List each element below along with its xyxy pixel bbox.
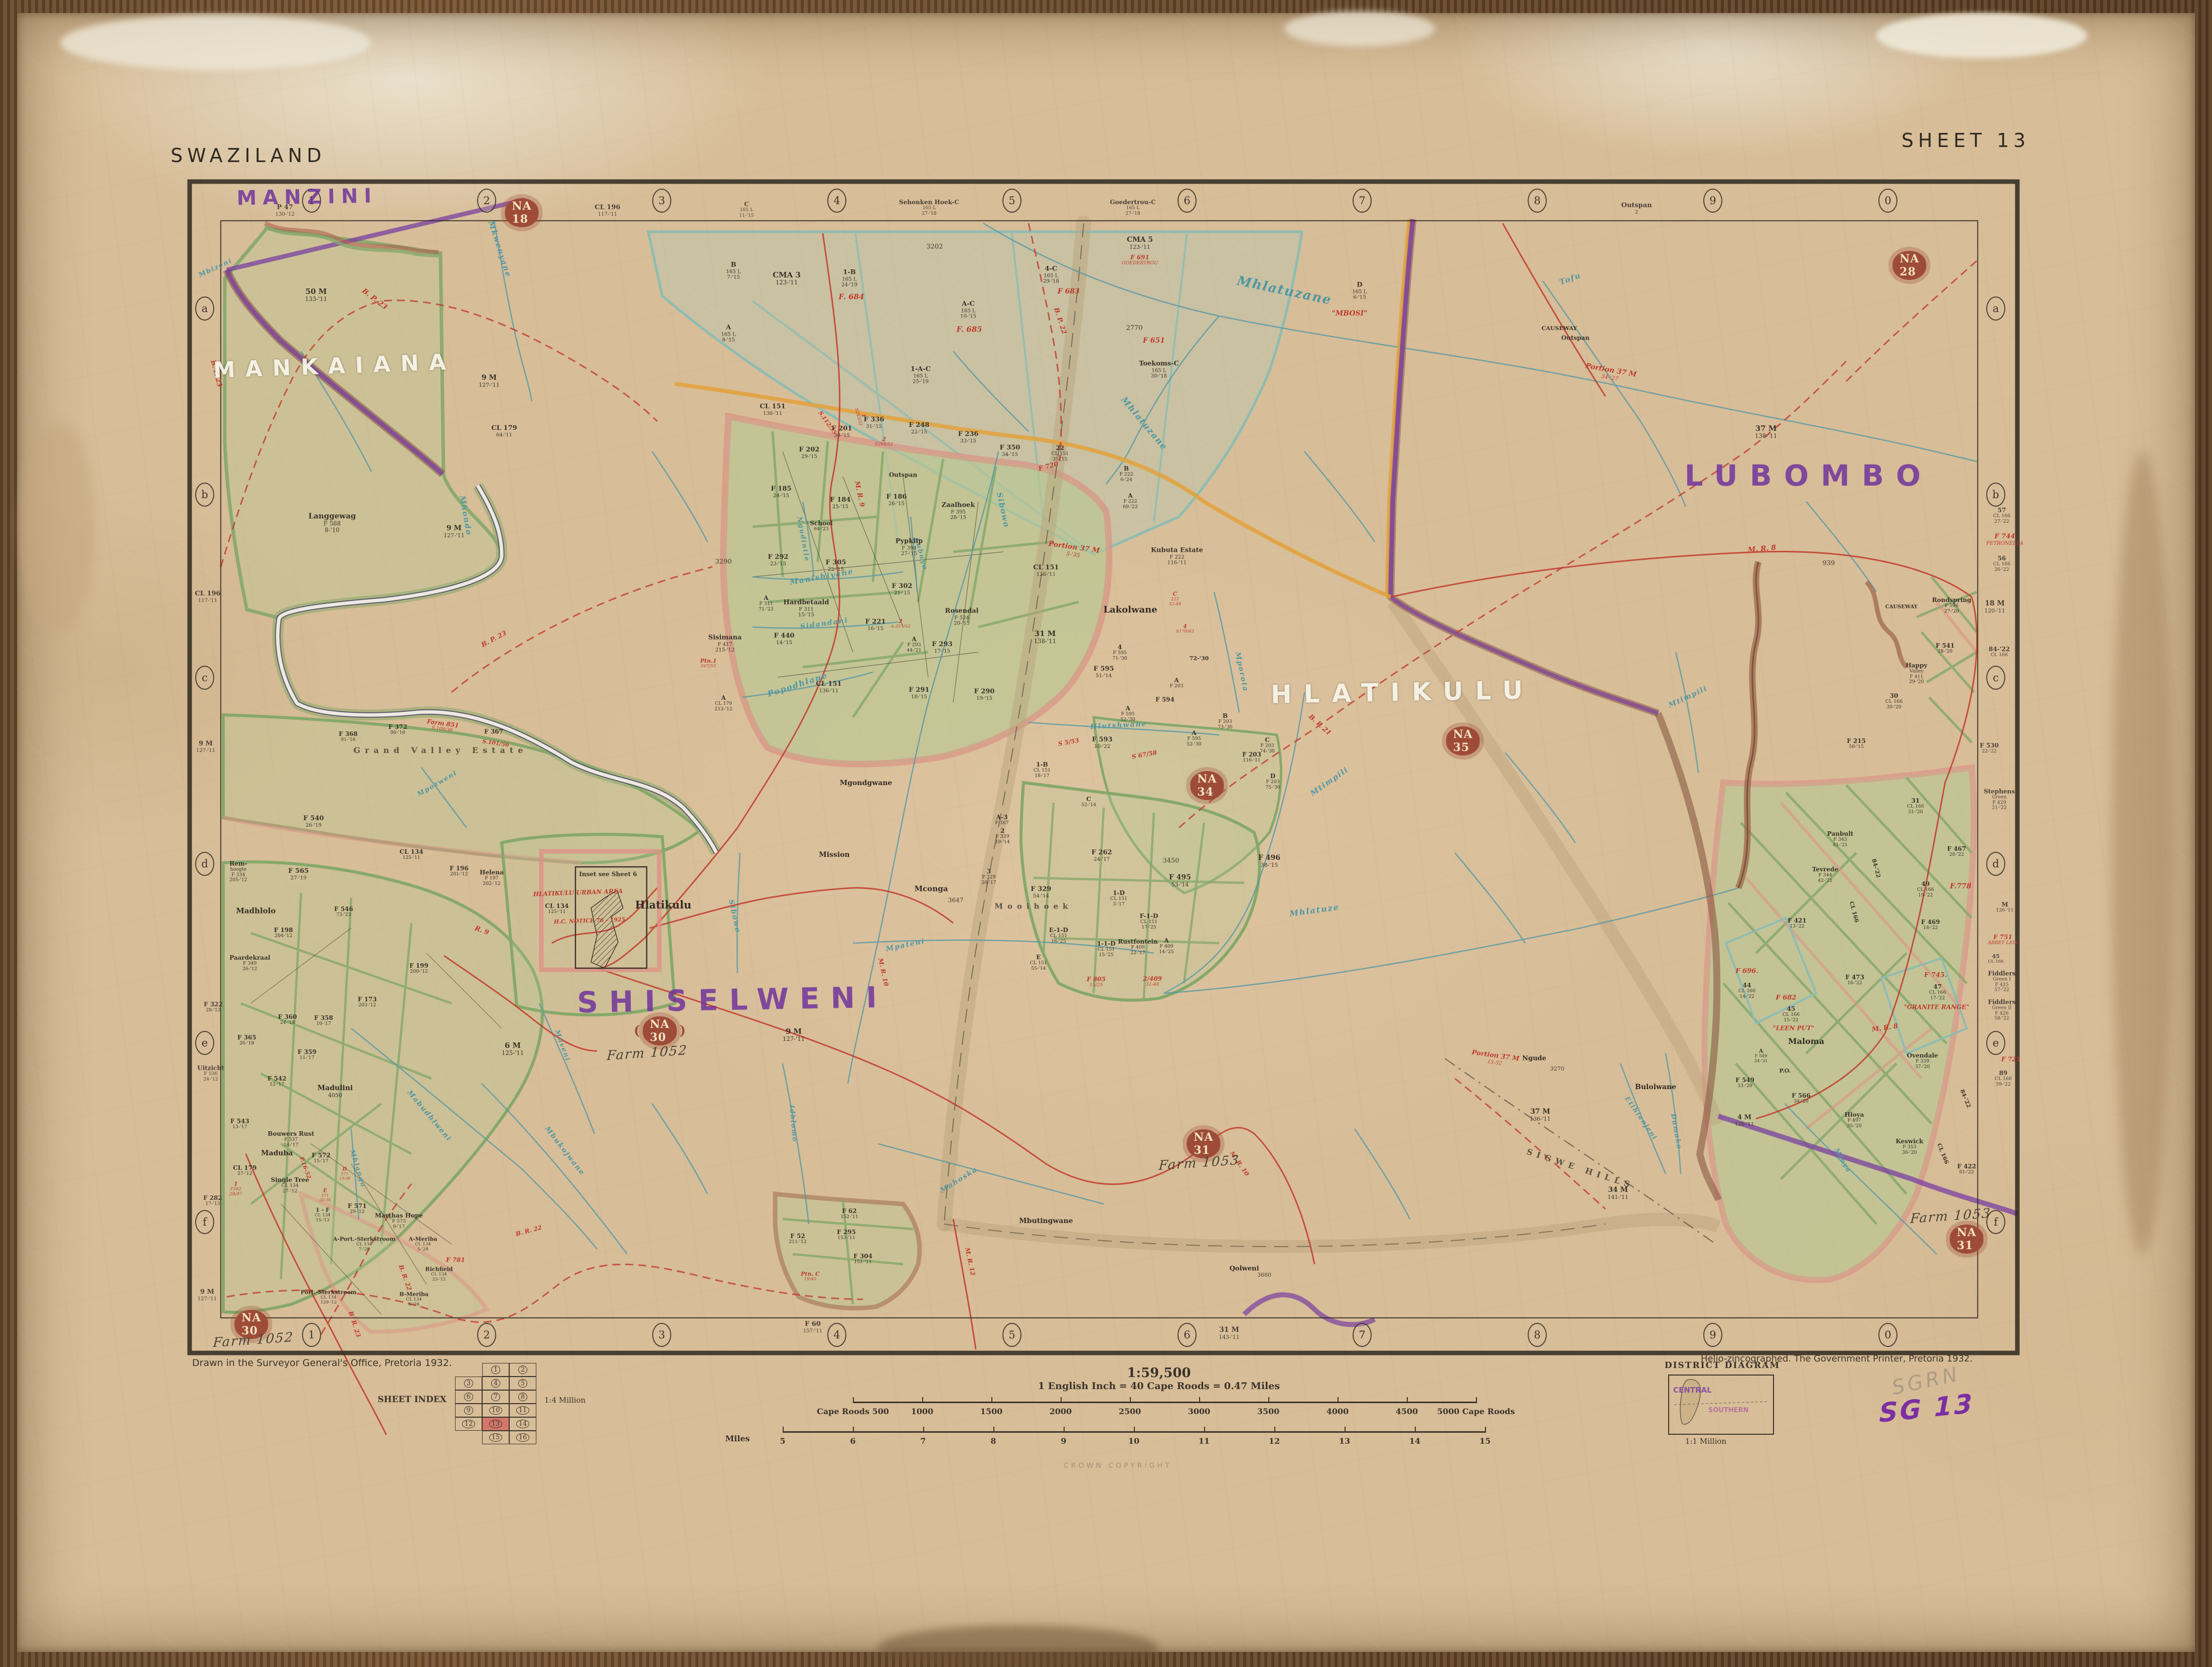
map-label-line: A bbox=[714, 695, 732, 701]
map-label-line: 165 L bbox=[1352, 289, 1367, 294]
map-label: KeswickF 35336-'20 bbox=[1895, 1138, 1923, 1155]
sheet-index-cell: 3 bbox=[455, 1377, 482, 1390]
map-label-line: F 572 bbox=[312, 1152, 331, 1159]
scalebar-label: 3000 bbox=[1188, 1407, 1211, 1416]
map-label-line: Bouwers Rust bbox=[267, 1131, 314, 1137]
scalebar-tick bbox=[1338, 1397, 1339, 1403]
map-label-line: F 350 bbox=[1000, 444, 1020, 452]
map-label-line: ABBEY LEIX bbox=[1988, 941, 2018, 946]
map-label-line: 36-'20 bbox=[1895, 1150, 1923, 1155]
scalebar-label: 1500 bbox=[980, 1407, 1003, 1416]
map-label-line: S284/52 bbox=[875, 442, 893, 447]
map-label-line: 50 M bbox=[305, 287, 327, 296]
map-label-line: 3202 bbox=[926, 244, 943, 251]
map-label-line: 116-'11 bbox=[1151, 560, 1203, 565]
map-label-line: Madulini bbox=[318, 1085, 353, 1093]
map-label-line: 17-'25 bbox=[1140, 925, 1158, 930]
map-label-line: 20-'17 bbox=[981, 880, 996, 885]
map-label-line: 117-'11 bbox=[595, 212, 620, 217]
native-area-badge: NA 35 bbox=[1446, 726, 1480, 755]
map-label-line: F 203 bbox=[1242, 751, 1261, 758]
map-label-line: 27-'19 bbox=[288, 875, 309, 881]
map-label-line: F 282 bbox=[203, 1195, 222, 1201]
map-label: 37 M138-'11 bbox=[1755, 424, 1777, 439]
map-label: 2/40931-44 bbox=[1143, 976, 1162, 988]
map-label-line: Qolweni bbox=[1230, 1266, 1259, 1273]
map-label-line: 165 L bbox=[726, 269, 741, 274]
district-diagram-outline bbox=[1669, 1376, 1773, 1434]
map-label: AF 203 bbox=[1169, 677, 1183, 689]
map-label-line: 1-D bbox=[1110, 890, 1127, 896]
map-label-line: Fiddlers bbox=[1988, 999, 2015, 1006]
sheet-index-cell: 13 bbox=[482, 1417, 509, 1431]
map-label: F 46918-'22 bbox=[1921, 919, 1940, 931]
map-label: F 62152-'11 bbox=[840, 1208, 858, 1220]
map-label-line: F 651 bbox=[1143, 337, 1165, 345]
scalebar-tick bbox=[1061, 1397, 1062, 1403]
grid-number: 5 bbox=[1002, 189, 1021, 213]
sheet-index-cell: 6 bbox=[455, 1390, 482, 1404]
map-label: AF 40914-'25 bbox=[1159, 938, 1174, 955]
map-label-line: F 588 bbox=[309, 520, 356, 527]
map-label-line: F 541 bbox=[1936, 643, 1955, 649]
map-label: F 57215-'17 bbox=[312, 1152, 331, 1164]
map-label: F 80515/25 bbox=[1087, 976, 1106, 988]
map-label-line: 30-'20 bbox=[1885, 705, 1902, 710]
map-label: CL 151136-'11 bbox=[816, 681, 841, 694]
map-label-line: CL 196 bbox=[595, 204, 620, 212]
map-label-line: 3290 bbox=[715, 559, 731, 566]
map-label-line: Mission bbox=[819, 851, 849, 859]
map-label-line: A bbox=[1123, 493, 1138, 499]
map-label: School64-'23 bbox=[810, 520, 832, 532]
map-label-line: 127-'11 bbox=[479, 382, 499, 388]
map-label: F 745. bbox=[1924, 972, 1947, 980]
map-label-line: 28-'15 bbox=[942, 515, 975, 520]
map-label: 9 M127-'11 bbox=[444, 525, 464, 539]
map-label: "GRANITE RANGE" bbox=[1904, 1004, 1970, 1010]
map-label: F 24822-'15 bbox=[909, 422, 930, 435]
scalebar-tick bbox=[991, 1397, 992, 1403]
map-label-line: P.O. bbox=[1779, 1068, 1791, 1074]
map-label-line: F 322 bbox=[204, 1001, 223, 1008]
map-label-line: A bbox=[759, 595, 774, 601]
map-label: PaardekraalF 34926-'12 bbox=[229, 955, 270, 972]
map-label-line: F 203 bbox=[1169, 684, 1183, 689]
scalebar-label: 15 bbox=[1480, 1436, 1491, 1446]
map-label-line: 120-'11 bbox=[1984, 608, 2005, 614]
map-label-line: F 290 bbox=[974, 688, 995, 696]
map-label-line: 165 L bbox=[911, 373, 931, 379]
map-label-line: F 467 bbox=[1947, 846, 1966, 852]
map-label-line: F 196 bbox=[450, 865, 469, 872]
map-label: M126-'11 bbox=[1996, 901, 2013, 914]
map-label-line: 1-A-C bbox=[911, 366, 931, 373]
map-label: Qolweni bbox=[1230, 1266, 1259, 1273]
map-label-line: 16-'25 bbox=[1049, 939, 1068, 944]
map-label: 1 - FCL 13415-'13 bbox=[315, 1207, 330, 1223]
map-label-line: 2/409 bbox=[1143, 976, 1162, 982]
sheet-index-number: 1 bbox=[491, 1366, 500, 1374]
map-label-line: 84-'22 bbox=[1989, 646, 2010, 653]
map-label-line: 12-'17 bbox=[267, 1082, 286, 1087]
map-label-line: 22-'15 bbox=[909, 429, 930, 435]
sheet-index-number: 14 bbox=[516, 1420, 530, 1428]
map-label-line: 31 bbox=[1907, 798, 1924, 804]
map-label: Ptn. C19/45 bbox=[801, 1271, 820, 1282]
map-label-line: F 185 bbox=[771, 486, 792, 493]
map-label: F-1-DCL 15117-'25 bbox=[1140, 913, 1158, 930]
map-label-line: CL 151 bbox=[760, 403, 785, 411]
map-label-line: F 781 bbox=[446, 1257, 465, 1263]
map-label-line: F 566 bbox=[1792, 1093, 1811, 1099]
map-label-line: 29-'20 bbox=[1906, 680, 1928, 685]
map-label-line: A bbox=[1169, 677, 1183, 684]
map-label: A-3F 367 bbox=[995, 814, 1008, 826]
scalebar-tick bbox=[1407, 1397, 1408, 1403]
map-label-line: 21-'15 bbox=[892, 590, 913, 596]
sheet-index-cell: 11 bbox=[509, 1404, 536, 1417]
map-label-line: 3-'17 bbox=[1110, 902, 1127, 907]
map-label: F 54026-'19 bbox=[304, 815, 324, 828]
scalebar-label: 5000 Cape Roods bbox=[1437, 1407, 1515, 1416]
district-diagram-box: CENTRALSOUTHERN bbox=[1668, 1375, 1774, 1435]
map-label-line: 125-'11 bbox=[399, 855, 423, 860]
map-label: UitzichtF 53624-'12 bbox=[197, 1065, 224, 1082]
sheet-index-number: 3 bbox=[464, 1379, 473, 1388]
badge-paren: ( bbox=[634, 1023, 640, 1038]
map-label: 45CL 166 bbox=[1988, 954, 2003, 965]
map-label: F 682 bbox=[1776, 995, 1797, 1002]
map-label-line: Marthas Hope bbox=[375, 1213, 423, 1219]
native-area-badge: NA 34 bbox=[1190, 771, 1224, 800]
map-label-line: Goedertrou-C bbox=[1110, 199, 1155, 206]
map-label-line: F 215 bbox=[1847, 738, 1866, 744]
grid-number: 4 bbox=[827, 189, 846, 213]
map-label: PypklipF 39427-'15 bbox=[896, 538, 923, 556]
map-label-line: A bbox=[1120, 705, 1135, 712]
map-label: 84-'22CL 166 bbox=[1989, 646, 2010, 658]
map-label: 3450 bbox=[1162, 858, 1179, 865]
map-label-line: 5-'28 bbox=[408, 1247, 437, 1252]
map-label: F 54128-'20 bbox=[1936, 643, 1955, 655]
map-label: "MBOSI" bbox=[1332, 310, 1367, 318]
sheet-index-grid: 12345678910111213141516 bbox=[455, 1363, 536, 1444]
grid-number: 9 bbox=[1703, 189, 1722, 213]
map-label-line: 24-'31 bbox=[1754, 1059, 1767, 1064]
map-label-line: 126-'11 bbox=[1735, 1122, 1754, 1127]
scalebar-tick bbox=[1345, 1427, 1346, 1433]
map-label-line: 200-'12 bbox=[409, 969, 428, 974]
map-label-line: F 683 bbox=[1058, 288, 1080, 296]
map-label-line: F 292 bbox=[768, 554, 789, 561]
map-label-line: C bbox=[1260, 737, 1275, 743]
sheet-index-cell: 15 bbox=[482, 1431, 509, 1444]
map-label: AF 59552-'30 bbox=[1187, 730, 1202, 747]
map-label-line: 90-'16 bbox=[388, 730, 407, 735]
map-label: 939 bbox=[1823, 560, 1835, 568]
scalebar-label: 10 bbox=[1128, 1436, 1139, 1446]
map-label-line: 9 M bbox=[479, 374, 499, 382]
scalebar-tick bbox=[1064, 1427, 1065, 1433]
grid-number: 0 bbox=[1878, 1323, 1897, 1347]
map-label: A-Port.-SterkstroomCL 1347-'28 bbox=[333, 1236, 396, 1252]
grid-letter: a bbox=[195, 296, 214, 321]
map-label-line: F 751 bbox=[1988, 934, 2018, 941]
map-label-line: 20-'22 bbox=[1947, 852, 1966, 857]
map-label-line: 30 bbox=[1885, 693, 1902, 699]
district-diagram-stamp: CENTRAL bbox=[1673, 1386, 1712, 1395]
map-label: CAUSEWAY bbox=[1885, 604, 1918, 610]
map-label: C165 L11-'15 bbox=[739, 201, 754, 218]
map-label-line: F 682 bbox=[1776, 995, 1797, 1002]
map-label: 45CL 16615-'22 bbox=[1783, 1006, 1800, 1023]
grid-number: 0 bbox=[1878, 189, 1897, 213]
map-label: F 29317-'15 bbox=[932, 641, 953, 654]
map-label-line: F 473 bbox=[1845, 974, 1864, 981]
map-label: F 367 bbox=[484, 728, 503, 735]
map-label: 31 M138-'11 bbox=[1034, 630, 1056, 645]
map-label: LanggewagF 5888-'10 bbox=[309, 512, 356, 534]
map-label-line: 136-'11 bbox=[1033, 572, 1059, 577]
map-label-line: D bbox=[1265, 773, 1280, 780]
map-label-line: 21-'22 bbox=[1984, 806, 2015, 811]
map-label: 1-1-DCL 15115-'25 bbox=[1097, 941, 1115, 958]
sheet-index-cell: 12 bbox=[455, 1417, 482, 1431]
map-label: F 691GOEDERTROU bbox=[1122, 254, 1158, 266]
badge-na-30: NA 30 bbox=[643, 1016, 676, 1045]
scalebar-label: 4000 bbox=[1326, 1407, 1349, 1416]
sheet-index-number: 7 bbox=[491, 1393, 500, 1401]
sheet-index-row: 12 bbox=[455, 1363, 536, 1377]
grid-letter: e bbox=[195, 1031, 214, 1055]
map-label-line: A-257/52 bbox=[891, 625, 910, 630]
map-label-line: 203-'12 bbox=[358, 1003, 377, 1008]
grid-number: 5 bbox=[1002, 1323, 1021, 1347]
map-label-line: F 222 bbox=[1151, 554, 1203, 560]
map-label-line: CL 179 bbox=[233, 1165, 256, 1171]
paper-background bbox=[17, 13, 2195, 1652]
map-label-line: GOEDERTROU bbox=[1122, 261, 1158, 266]
sheet-index-cell: 4 bbox=[482, 1377, 509, 1390]
map-label-line: 153-'11 bbox=[837, 1236, 856, 1241]
badge-na-31: NA 31 bbox=[1950, 1225, 1983, 1254]
map-label: F 54313-'17 bbox=[230, 1118, 249, 1130]
map-label: F 54212-'17 bbox=[267, 1076, 286, 1088]
map-label-line: B bbox=[726, 261, 741, 269]
map-label-line: 52-'14 bbox=[1081, 803, 1096, 808]
map-label-line: Maloma bbox=[1788, 1037, 1824, 1046]
map-label-line: 202-'12 bbox=[480, 881, 504, 886]
map-label: F.778 bbox=[1950, 883, 1972, 891]
map-label-line: 207/52 bbox=[700, 664, 717, 669]
map-label-line: Panbult bbox=[1827, 831, 1853, 837]
map-label-line: 19/45 bbox=[801, 1277, 820, 1282]
map-label-line: Mooihoek bbox=[994, 902, 1072, 911]
map-label-line: 22-'22 bbox=[1980, 749, 1999, 754]
badge-na-28: NA 28 bbox=[1892, 251, 1926, 280]
map-label-line: 19-38 bbox=[339, 1177, 350, 1181]
map-label: 4F 59571-'30 bbox=[1112, 644, 1127, 661]
map-label: F 20229-'15 bbox=[799, 446, 820, 460]
map-label: RichfieldCL 13423-'12 bbox=[425, 1266, 453, 1282]
map-label-line: 15-'15 bbox=[784, 612, 829, 618]
map-label-line: 2B/47 bbox=[229, 1192, 242, 1197]
map-label-line: Bulolwane bbox=[1635, 1084, 1676, 1092]
sheet-index-cell bbox=[455, 1431, 482, 1444]
map-label-line: 15-'13 bbox=[315, 1218, 330, 1223]
map-label-line: F-1-D bbox=[1140, 913, 1158, 920]
map-label: A-C165 L10-'15 bbox=[960, 300, 976, 319]
native-area-badge: NA 31 bbox=[1950, 1225, 1983, 1254]
map-label-line: 57-'22 bbox=[1988, 988, 2015, 993]
map-label: CMA 5123-'11 bbox=[1127, 236, 1153, 250]
map-label-line: 138-'11 bbox=[1755, 433, 1777, 439]
map-label-line: Lakolwane bbox=[1103, 605, 1157, 615]
sheet-index-number: 11 bbox=[516, 1406, 530, 1415]
map-label: 72-'30 bbox=[1190, 656, 1209, 662]
map-label: ZaalhoekF 39528-'15 bbox=[942, 502, 975, 520]
map-label-line: 204-'12 bbox=[274, 934, 293, 939]
map-label-line: 165 L bbox=[721, 332, 735, 337]
map-label-line: F 524 bbox=[945, 615, 979, 621]
map-label-line: 27-'20 bbox=[1932, 609, 1971, 614]
map-label-line: Mgondgwane bbox=[840, 780, 893, 788]
map-label: 49CL 16619-'22 bbox=[1917, 881, 1934, 898]
map-label: F 781 bbox=[446, 1257, 465, 1263]
map-label-line: 31 M bbox=[1219, 1326, 1239, 1334]
map-label-line: 26-'22 bbox=[1993, 567, 2010, 572]
scalebar-label: 5 bbox=[780, 1436, 785, 1446]
map-label: Mission bbox=[819, 851, 849, 859]
district-stamp: MANZINI bbox=[236, 185, 377, 210]
map-label-line: CL 134 bbox=[399, 849, 423, 855]
map-label: F 21550-'15 bbox=[1847, 738, 1866, 750]
map-label-line: 6-'15 bbox=[1352, 294, 1367, 300]
map-label-line: 24-'12 bbox=[197, 1077, 224, 1082]
sheet-index-number: 4 bbox=[491, 1379, 500, 1388]
map-label-line: F 221 bbox=[865, 619, 886, 626]
map-label-line: 201-'12 bbox=[450, 872, 469, 877]
map-label: AF 29344-'21 bbox=[907, 636, 922, 653]
map-label-line: 29-'18 bbox=[1043, 278, 1059, 284]
map-label-line: 24-'19 bbox=[841, 282, 857, 287]
grid-number: 8 bbox=[1528, 189, 1547, 213]
map-label-line: F 495 bbox=[1169, 874, 1191, 882]
map-label-line: F 199 bbox=[409, 963, 428, 969]
map-label-line: C bbox=[739, 201, 754, 208]
scalebar-tick bbox=[853, 1427, 854, 1433]
map-label: 37 M136-'11 bbox=[1530, 1108, 1550, 1122]
grid-number: 7 bbox=[1353, 1323, 1372, 1347]
map-label-line: A-3 bbox=[995, 814, 1008, 821]
map-label-line: 17-'22 bbox=[1929, 996, 1946, 1001]
map-label-line: 127-'11 bbox=[196, 748, 215, 753]
map-label-line: Rondspring bbox=[1932, 597, 1971, 603]
map-label: Maduba bbox=[261, 1150, 292, 1158]
map-label-line: F 595 bbox=[1094, 666, 1114, 673]
map-label-line: F. 685 bbox=[957, 326, 982, 334]
map-label: F 56527-'19 bbox=[288, 868, 309, 881]
map-label: Mconga bbox=[915, 885, 948, 893]
map-label-line: F 745. bbox=[1924, 972, 1947, 980]
map-label-line: 91-'16 bbox=[339, 737, 358, 742]
map-label: HelenaF 197202-'12 bbox=[480, 869, 504, 886]
grid-number: 6 bbox=[1177, 1323, 1197, 1347]
district-diagram-stamp: SOUTHERN bbox=[1708, 1407, 1749, 1414]
map-label-line: 116-'11 bbox=[1242, 758, 1261, 763]
sheet-index-row: 345 bbox=[455, 1377, 536, 1390]
map-label: Outspan bbox=[889, 472, 917, 478]
map-label: F 18626-'15 bbox=[887, 494, 907, 507]
badge-na-34: NA 34 bbox=[1190, 771, 1224, 800]
sheet-index-number: 9 bbox=[464, 1406, 473, 1415]
map-label: 4 M126-'11 bbox=[1735, 1114, 1754, 1127]
map-label: 6 M125-'11 bbox=[502, 1041, 524, 1056]
map-label: F 49638-'15 bbox=[1258, 854, 1280, 868]
map-label: 44CL 16614-'22 bbox=[1738, 982, 1755, 999]
map-label-line: 18-'17 bbox=[1034, 774, 1051, 779]
map-label-line: 14-'25 bbox=[1159, 950, 1174, 955]
grid-number: 2 bbox=[477, 189, 496, 213]
map-label-line: Sehonken Hoek-C bbox=[899, 199, 959, 206]
map-label: 18 M120-'11 bbox=[1984, 600, 2005, 614]
map-label: 3647 bbox=[948, 897, 964, 903]
scalebar-tick bbox=[1134, 1427, 1135, 1433]
map-label: 1F2822B/47 bbox=[229, 1181, 242, 1197]
scalebar-label: 2500 bbox=[1119, 1407, 1141, 1416]
native-area-badge: (NA 30) bbox=[634, 1016, 686, 1045]
map-label-line: "LEEN PUT" bbox=[1773, 1025, 1815, 1031]
map-label-line: 14-'15 bbox=[774, 640, 795, 646]
map-label: Madulini4050 bbox=[318, 1085, 353, 1099]
map-label-line: Maduba bbox=[261, 1150, 292, 1158]
map-label-line: A bbox=[721, 324, 735, 332]
map-label: F 56634-'20 bbox=[1792, 1093, 1811, 1105]
map-label: F. 684 bbox=[839, 293, 864, 301]
map-label-line: CMA 5 bbox=[1127, 236, 1153, 244]
map-label-line: F 291 bbox=[909, 687, 930, 694]
map-label-line: 165 L bbox=[1043, 273, 1059, 278]
map-label-line: 136-'11 bbox=[1530, 1116, 1550, 1122]
map-label-line: Helena bbox=[480, 869, 504, 876]
map-label: CL 151136-'11 bbox=[760, 403, 785, 416]
map-label-line: 14-'17 bbox=[267, 1143, 314, 1148]
scalebar-label: Cape Roods 500 bbox=[817, 1407, 889, 1416]
map-label: FiddlersGreen IIF 42658-'22 bbox=[1988, 999, 2015, 1022]
map-label-line: Outspan bbox=[889, 472, 917, 478]
map-label: F 29118-'15 bbox=[909, 687, 930, 700]
map-label: TevredeF 34442-'21 bbox=[1812, 866, 1838, 883]
map-label-line: 127-'11 bbox=[198, 1296, 217, 1302]
map-label: A165 L8-'15 bbox=[721, 324, 735, 343]
map-label-line: 1-B bbox=[1034, 762, 1051, 768]
map-label-line: S170/63 bbox=[1176, 630, 1194, 635]
map-label-line: 26-'12 bbox=[229, 967, 270, 972]
map-label-line: Ngude bbox=[1522, 1055, 1546, 1063]
map-label: 89CL 16659-'22 bbox=[1995, 1070, 2012, 1087]
map-label-line: B bbox=[1119, 466, 1133, 472]
map-label-line: 157-'11 bbox=[803, 1328, 822, 1334]
map-label-line: 72-'30 bbox=[1190, 656, 1209, 662]
map-label-line: 20-38 bbox=[320, 1198, 331, 1203]
sheet-index-cell: 10 bbox=[482, 1404, 509, 1417]
map-label-line: 1-B bbox=[841, 269, 857, 276]
scalebar-tick bbox=[993, 1427, 994, 1433]
map-label-line: F 329 bbox=[1031, 886, 1052, 893]
map-label-line: 127-'11 bbox=[783, 1036, 805, 1042]
sheet-index-cell: 1 bbox=[482, 1363, 509, 1377]
